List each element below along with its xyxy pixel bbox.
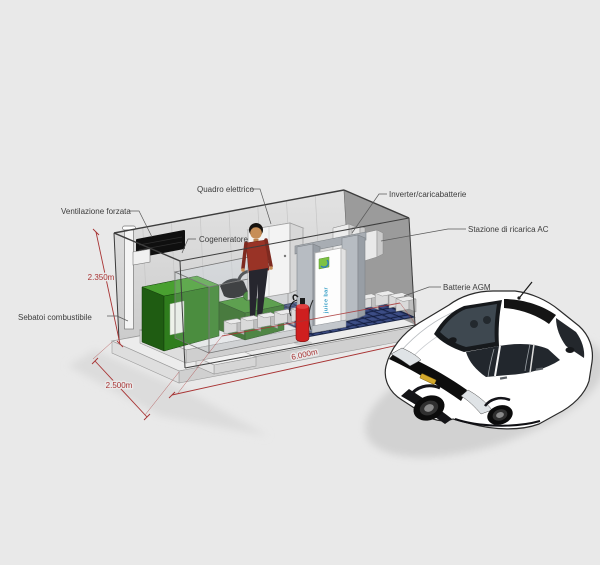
label-stazione-ricarica-ac: Stazione di ricarica AC [468, 225, 549, 234]
car-mirror-right [566, 347, 575, 353]
cabinet-handle [284, 255, 286, 257]
container: juice bar [112, 190, 419, 383]
label-ventilazione-forzata: Ventilazione forzata [61, 207, 131, 216]
label-cogeneratore: Cogeneratore [199, 235, 248, 244]
scene: juice bar [0, 0, 600, 565]
dimension-height-text: 2.350m [88, 273, 115, 282]
dimension-depth-text: 2.500m [106, 381, 133, 390]
diagram-canvas: juice bar [0, 0, 600, 565]
label-quadro-elettrico: Quadro elettrico [197, 185, 254, 194]
electric-car [385, 282, 592, 429]
station-brand-text: juice bar [324, 286, 330, 314]
label-inverter-caricabatterie: Inverter/caricabatterie [389, 190, 467, 199]
label-serbatoi-combustibile: Sebatoi combustibile [18, 313, 92, 322]
extinguisher-body [296, 304, 309, 342]
label-batterie-agm: Batterie AGM [443, 283, 491, 292]
